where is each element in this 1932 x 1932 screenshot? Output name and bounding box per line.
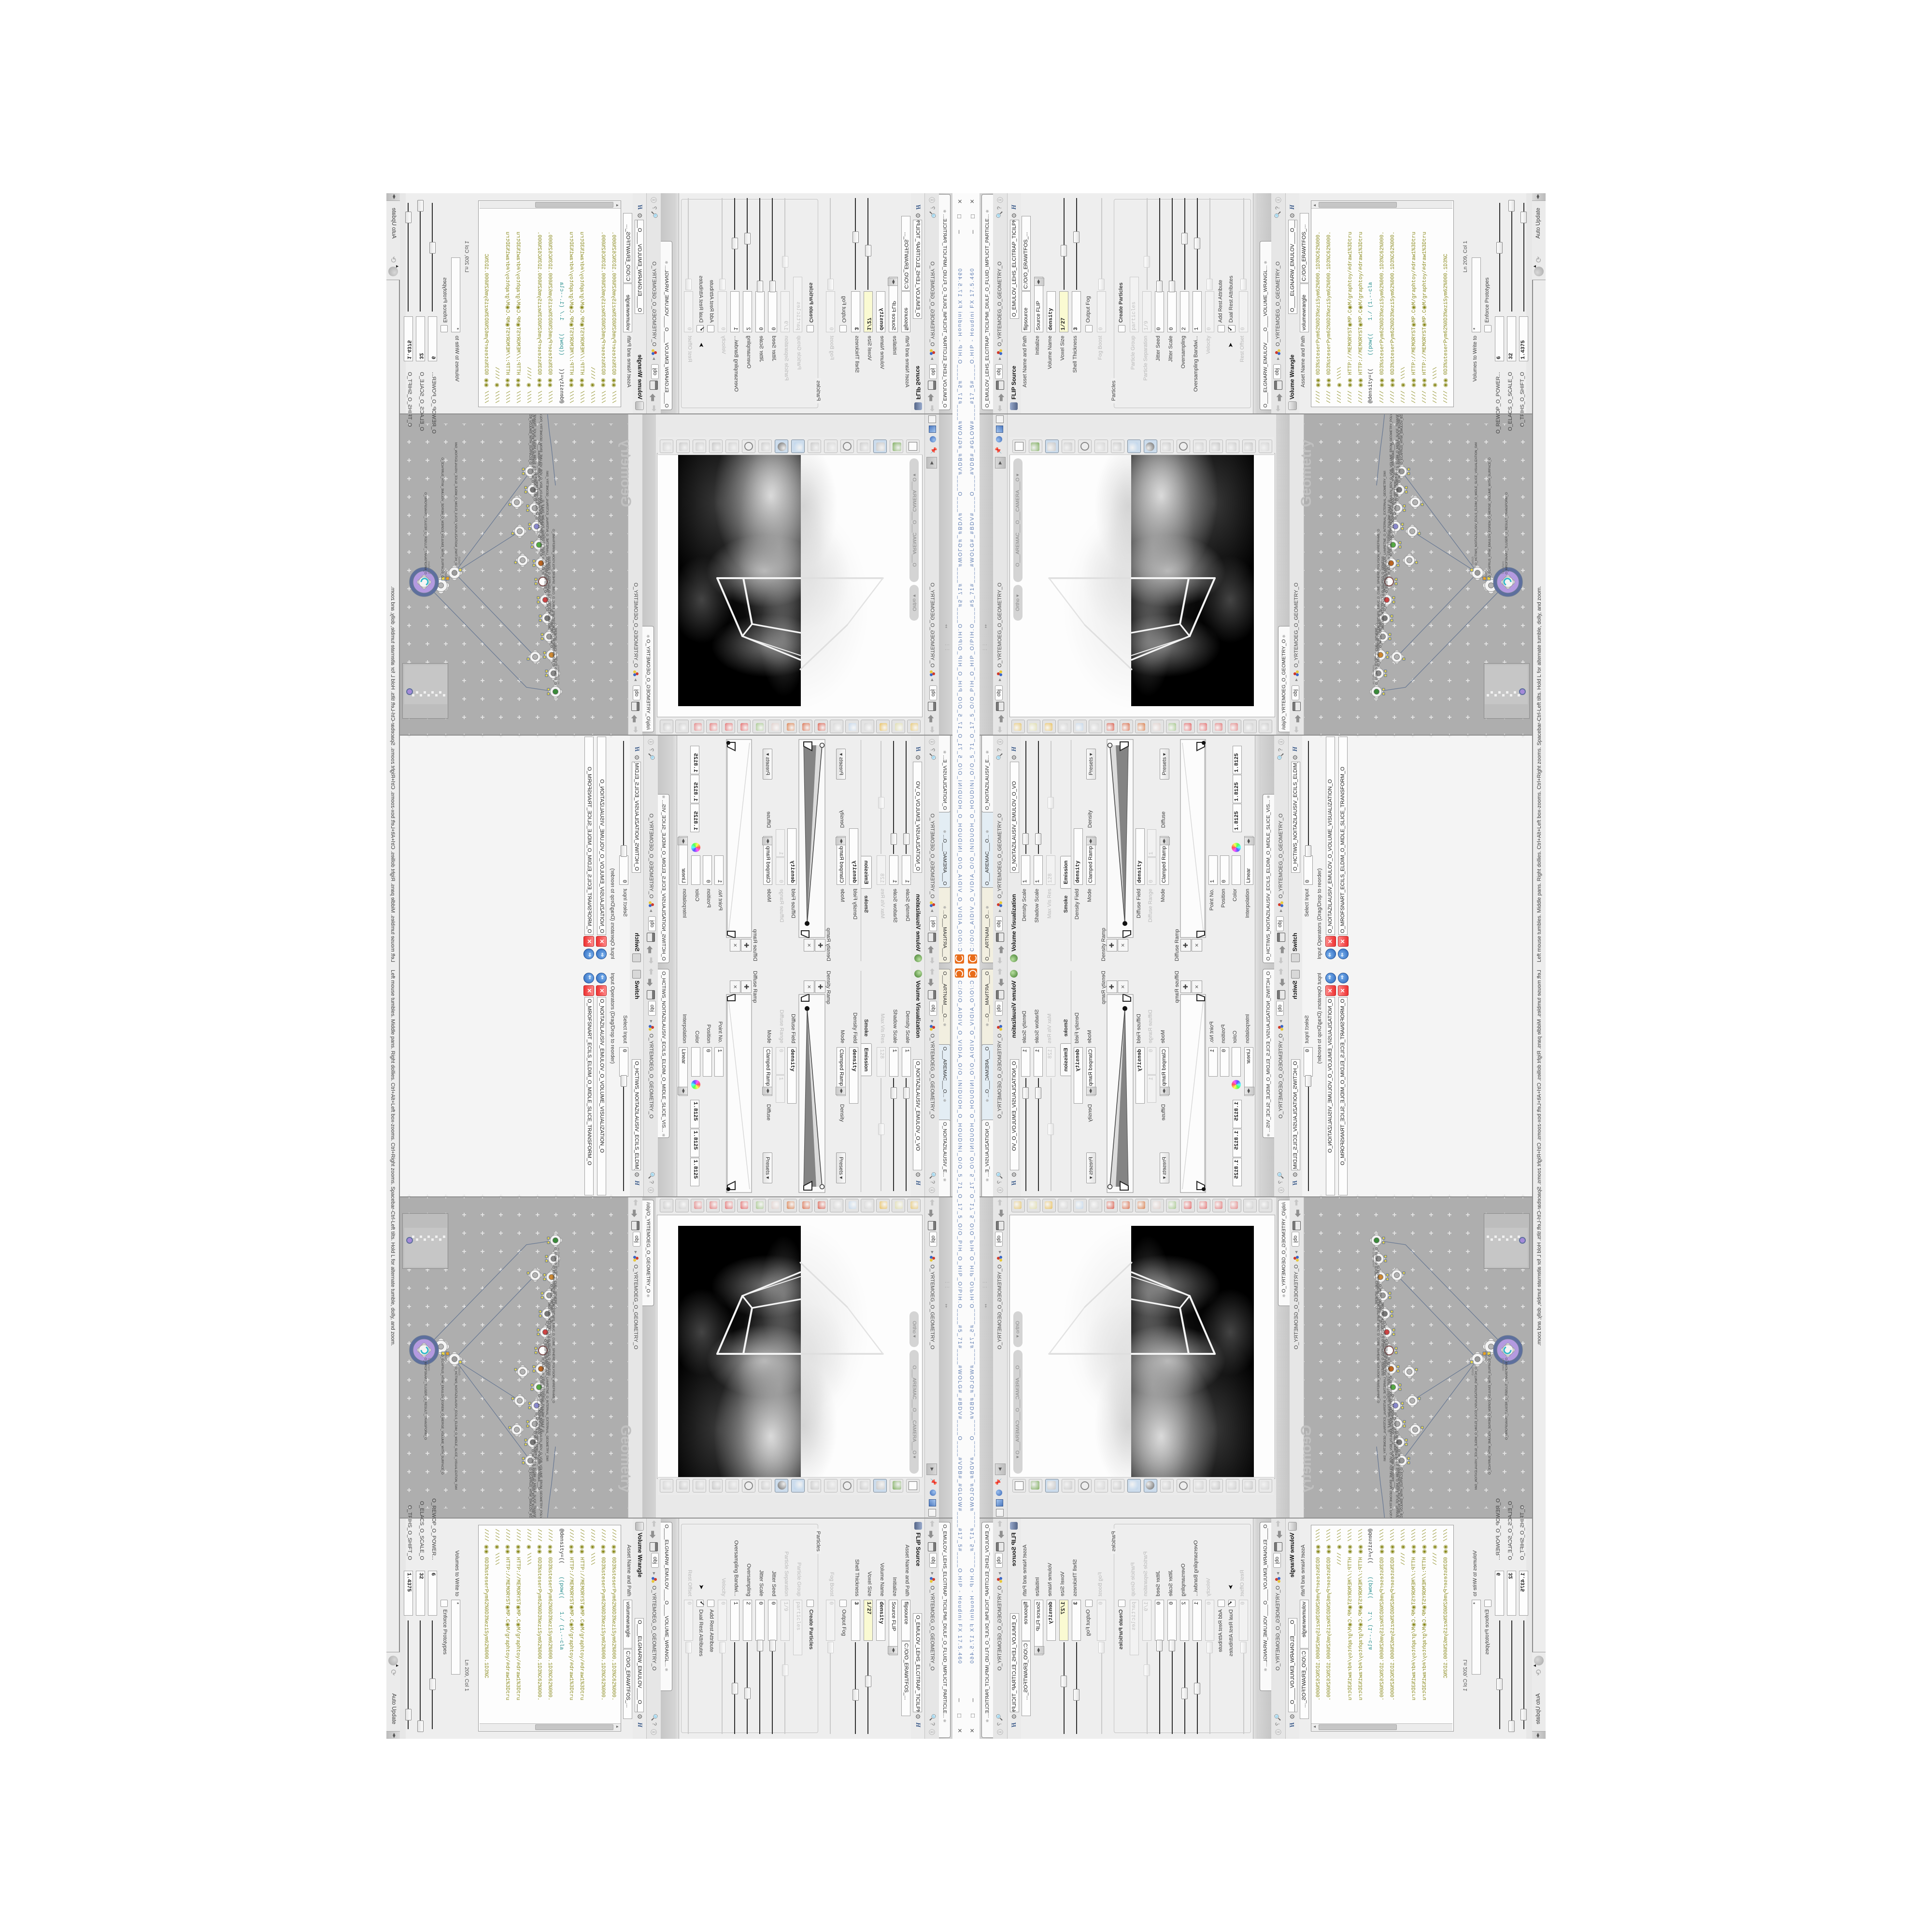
svg-text:an_CubeSphere: an_CubeSphere: [557, 1248, 560, 1267]
svg-text:O_ECAFRUS_HTIW_EMULOV_EGREM_O_: O_ECAFRUS_HTIW_EMULOV_EGREM_O_MERGE_VOLU…: [440, 457, 444, 578]
svg-text:Volume Wrangle: Volume Wrangle: [540, 518, 543, 538]
svg-text:Clip: Clip: [547, 1339, 550, 1344]
svg-text:VolumeVisualiz: VolumeVisualiz: [538, 1413, 541, 1431]
svg-text:File: File: [551, 625, 554, 629]
svg-text:Volume Wrangle: Volume Wrangle: [540, 1394, 543, 1414]
svg-text:Transform: Transform: [427, 561, 430, 574]
svg-text:VolumeVisualiz: VolumeVisualiz: [538, 501, 541, 519]
svg-text:O_HCTIWS_NOITAZILAUSIV_ECILS_E: O_HCTIWS_NOITAZILAUSIV_ECILS_ELDIM_O_MID…: [1475, 442, 1478, 565]
svg-text:FLIP Source: FLIP Source: [544, 1358, 547, 1372]
svg-text:O_HCTIWS_NOITAZILAUSIV_ECILS_E: O_HCTIWS_NOITAZILAUSIV_ECILS_ELDIM_O_MID…: [454, 442, 457, 565]
svg-text:FLIP Source: FLIP Source: [544, 560, 547, 574]
svg-text:Switch: Switch: [457, 1367, 460, 1376]
svg-text:O_MROFSNART_TLUSER_O_RESULT_TR: O_MROFSNART_TLUSER_O_RESULT_TRANSFORM_O: [424, 492, 427, 574]
svg-text:O_ECAFRUS_HTIW_EMULOV_EGREM_O_: O_ECAFRUS_HTIW_EMULOV_EGREM_O_MERGE_VOLU…: [1400, 1468, 1404, 1518]
svg-text:O_HCTIWS_NOITAZILAUSIV_ECILS_E: O_HCTIWS_NOITAZILAUSIV_ECILS_ELDIM_O_MID…: [1475, 1367, 1478, 1490]
svg-text:Merge: Merge: [444, 569, 447, 578]
svg-text:Switch: Switch: [549, 1321, 552, 1329]
svg-text:Merge: Merge: [532, 1468, 535, 1476]
svg-text:Clip: Clip: [547, 588, 550, 593]
svg-text:O_ECAFRUS_HTIW_EMULOV_EGREM_O_: O_ECAFRUS_HTIW_EMULOV_EGREM_O_MERGE_VOLU…: [528, 1468, 532, 1518]
svg-text:O_HCTIWS_NOITAZILAUSIV_ECILS_E: O_HCTIWS_NOITAZILAUSIV_ECILS_ELDIM_O_MID…: [454, 1367, 457, 1490]
svg-text:Boolean: Boolean: [553, 638, 556, 648]
svg-text:O_MROFSNART_TLUSER_O_RESULT_TR: O_MROFSNART_TLUSER_O_RESULT_TRANSFORM_O: [1505, 492, 1508, 574]
svg-text:Merge: Merge: [444, 1354, 447, 1363]
svg-text:O_MROFSNART_TLUSER_O_RESULT_TR: O_MROFSNART_TLUSER_O_RESULT_TRANSFORM_O: [424, 1358, 427, 1440]
svg-text:PolyWire: PolyWire: [555, 655, 558, 666]
svg-text:Switch: Switch: [549, 603, 552, 611]
svg-text:O_ECAFRUS_HTIW_EMULOV_EGREM_O_: O_ECAFRUS_HTIW_EMULOV_EGREM_O_MERGE_VOLU…: [1488, 457, 1492, 578]
svg-text:O_ECAFRUS_HTIW_EMULOV_EGREM_O_: O_ECAFRUS_HTIW_EMULOV_EGREM_O_MERGE_VOLU…: [1400, 414, 1404, 464]
svg-text:Transform: Transform: [536, 1431, 539, 1443]
svg-text:O_ECAFRUS_HTIW_EMULOV_EGREM_O_: O_ECAFRUS_HTIW_EMULOV_EGREM_O_MERGE_VOLU…: [1488, 1354, 1492, 1475]
svg-text:File: File: [551, 1303, 554, 1307]
svg-text:Transform: Transform: [536, 489, 539, 501]
svg-text:O_ECAFRUS_HTIW_EMULOV_EGREM_O_: O_ECAFRUS_HTIW_EMULOV_EGREM_O_MERGE_VOLU…: [440, 1354, 444, 1475]
svg-text:PolyWire: PolyWire: [555, 1266, 558, 1277]
svg-text:O_ECAFRUS_HTIW_EMULOV_EGREM_O_: O_ECAFRUS_HTIW_EMULOV_EGREM_O_MERGE_VOLU…: [528, 414, 532, 464]
svg-text:O_MROFSNART_TLUSER_O_RESULT_TR: O_MROFSNART_TLUSER_O_RESULT_TRANSFORM_O: [1505, 1358, 1508, 1440]
svg-text:Transform: Transform: [427, 1358, 430, 1371]
svg-text:an_CubeSphere: an_CubeSphere: [557, 665, 560, 684]
svg-text:Merge: Merge: [532, 456, 535, 464]
svg-text:Switch: Switch: [534, 1449, 537, 1457]
svg-text:Switch: Switch: [457, 556, 460, 565]
svg-text:Switch: Switch: [534, 475, 537, 483]
svg-text:Boolean: Boolean: [553, 1284, 556, 1294]
